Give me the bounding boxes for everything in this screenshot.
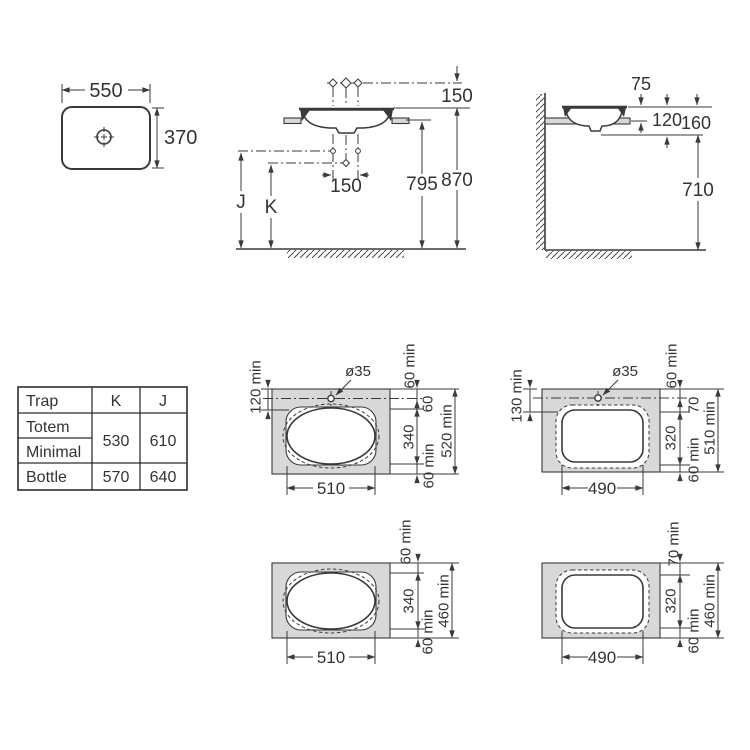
table-header-trap: Trap <box>26 393 58 410</box>
table-row-minimal: Minimal <box>26 444 81 461</box>
dim-bottom-margin-label: 60 min <box>686 437 703 482</box>
dim-hole-to-cutout-label: 70 <box>686 397 703 414</box>
dimension-k: K <box>265 165 278 248</box>
dimension-chain: 60 min 60 340 60 min <box>401 343 438 488</box>
dimension-faucet-height: 150 <box>441 66 473 107</box>
dim-top-margin-label: 60 min <box>402 343 419 388</box>
dim-rim-height-label: 870 <box>441 170 473 191</box>
cutout-510-with-hole: ø35 120 min 60 min 60 340 60 min <box>248 343 460 498</box>
table-value-totem-minimal-k: 530 <box>103 433 130 450</box>
dimension-faucet-spacing: 150 <box>322 175 369 197</box>
dimension-counter-height: 795 <box>406 122 438 248</box>
dim-total-depth-label: 510 min <box>702 401 719 454</box>
dim-710-label: 710 <box>682 180 714 201</box>
dim-k-label: K <box>265 197 278 218</box>
trap-table: Trap K J Totem Minimal Bottle 530 610 57… <box>18 387 187 490</box>
dim-top-margin-label: 70 min <box>666 521 683 566</box>
dim-faucet-height-label: 150 <box>441 86 473 107</box>
dimension-total-depth: 510 min <box>702 389 719 472</box>
dim-depth-label: 370 <box>164 127 197 149</box>
dim-depth-label: 340 <box>401 588 418 613</box>
dimension-j: J <box>236 153 246 248</box>
dimension-total-depth: 460 min <box>436 563 453 638</box>
dim-counter-height-label: 795 <box>406 174 438 195</box>
dim-160-label: 160 <box>681 113 711 133</box>
floor-hatch-front <box>287 250 404 258</box>
cutout-490-no-hole: 70 min 320 60 min 460 min 490 <box>542 521 724 667</box>
cutout-line <box>562 410 643 462</box>
dimension-chain: 70 min 320 60 min <box>663 521 703 653</box>
technical-drawing-canvas: 550 370 <box>0 0 750 750</box>
table-value-bottle-j: 640 <box>150 469 177 486</box>
table-value-bottle-k: 570 <box>103 469 130 486</box>
dim-faucet-spacing-label: 150 <box>330 176 362 197</box>
hole-diameter-label: ø35 <box>345 363 371 380</box>
dim-total-depth-label: 520 min <box>439 404 456 457</box>
faucet-marker-left <box>329 79 337 87</box>
dim-depth-label: 320 <box>663 425 680 450</box>
hole-diameter-label: ø35 <box>612 363 638 380</box>
dim-width-label: 490 <box>588 648 616 667</box>
dim-total-depth-label: 460 min <box>436 574 453 627</box>
table-row-totem: Totem <box>26 419 70 436</box>
dim-width-label: 550 <box>89 80 122 102</box>
dim-width-label: 510 <box>317 648 345 667</box>
basin-outline <box>287 408 375 464</box>
dim-depth-label: 340 <box>401 424 418 449</box>
dim-hole-to-cutout-label: 60 <box>420 396 437 413</box>
basin-top-view: 550 370 <box>62 80 197 169</box>
cutout-490-with-hole: ø35 130 min 60 min 70 320 60 min <box>509 343 725 498</box>
dim-j-label: J <box>236 192 246 213</box>
faucet-hole <box>595 395 601 401</box>
dimension-chain: 60 min 340 60 min <box>398 519 437 654</box>
basin-bowl-side <box>565 108 623 131</box>
dim-top-margin-label: 60 min <box>398 519 415 564</box>
dim-back-edge-label: 120 min <box>248 360 265 413</box>
faucet-hole <box>328 395 334 401</box>
basin-front-view: J K 150 150 870 7 <box>236 66 473 258</box>
dimension-underside-height: 710 <box>682 135 714 250</box>
technical-drawing-page: 550 370 <box>0 0 750 750</box>
dim-width-label: 490 <box>588 479 616 498</box>
dim-total-depth-label: 460 min <box>702 574 719 627</box>
dim-75-label: 75 <box>631 74 651 94</box>
basin-bowl-front <box>302 110 391 133</box>
table-header-k: K <box>111 393 122 410</box>
dim-bottom-margin-label: 60 min <box>421 443 438 488</box>
table-header-j: J <box>159 393 167 410</box>
dimension-chain: 60 min 70 320 60 min <box>663 343 703 482</box>
dimension-basin-inset: 120 <box>652 110 682 148</box>
wall-hatch <box>536 94 545 250</box>
dim-depth-label: 320 <box>663 588 680 613</box>
faucet-marker-right <box>354 79 362 87</box>
dim-top-margin-label: 60 min <box>664 343 681 388</box>
countertop-right <box>392 118 409 124</box>
cutout-line <box>562 575 643 628</box>
dimension-total-depth: 460 min <box>702 563 719 638</box>
dim-bottom-margin-label: 60 min <box>686 608 703 653</box>
countertop-left <box>284 118 301 124</box>
floor-hatch-side <box>546 251 632 259</box>
table-row-bottle: Bottle <box>26 469 67 486</box>
dim-120-label: 120 <box>652 110 682 130</box>
dim-width-label: 510 <box>317 479 345 498</box>
dimension-total-depth: 520 min <box>439 389 456 474</box>
cutout-510-no-hole: 60 min 340 60 min 460 min 510 <box>272 519 459 667</box>
basin-outline <box>287 573 375 629</box>
table-value-totem-minimal-j: 610 <box>150 433 177 450</box>
faucet-marker-center <box>341 78 351 88</box>
basin-side-view: 75 120 160 710 <box>536 74 714 259</box>
dim-bottom-margin-label: 60 min <box>420 609 437 654</box>
dim-back-edge-label: 130 min <box>509 369 526 422</box>
dimension-rim-height: 870 <box>441 108 473 248</box>
